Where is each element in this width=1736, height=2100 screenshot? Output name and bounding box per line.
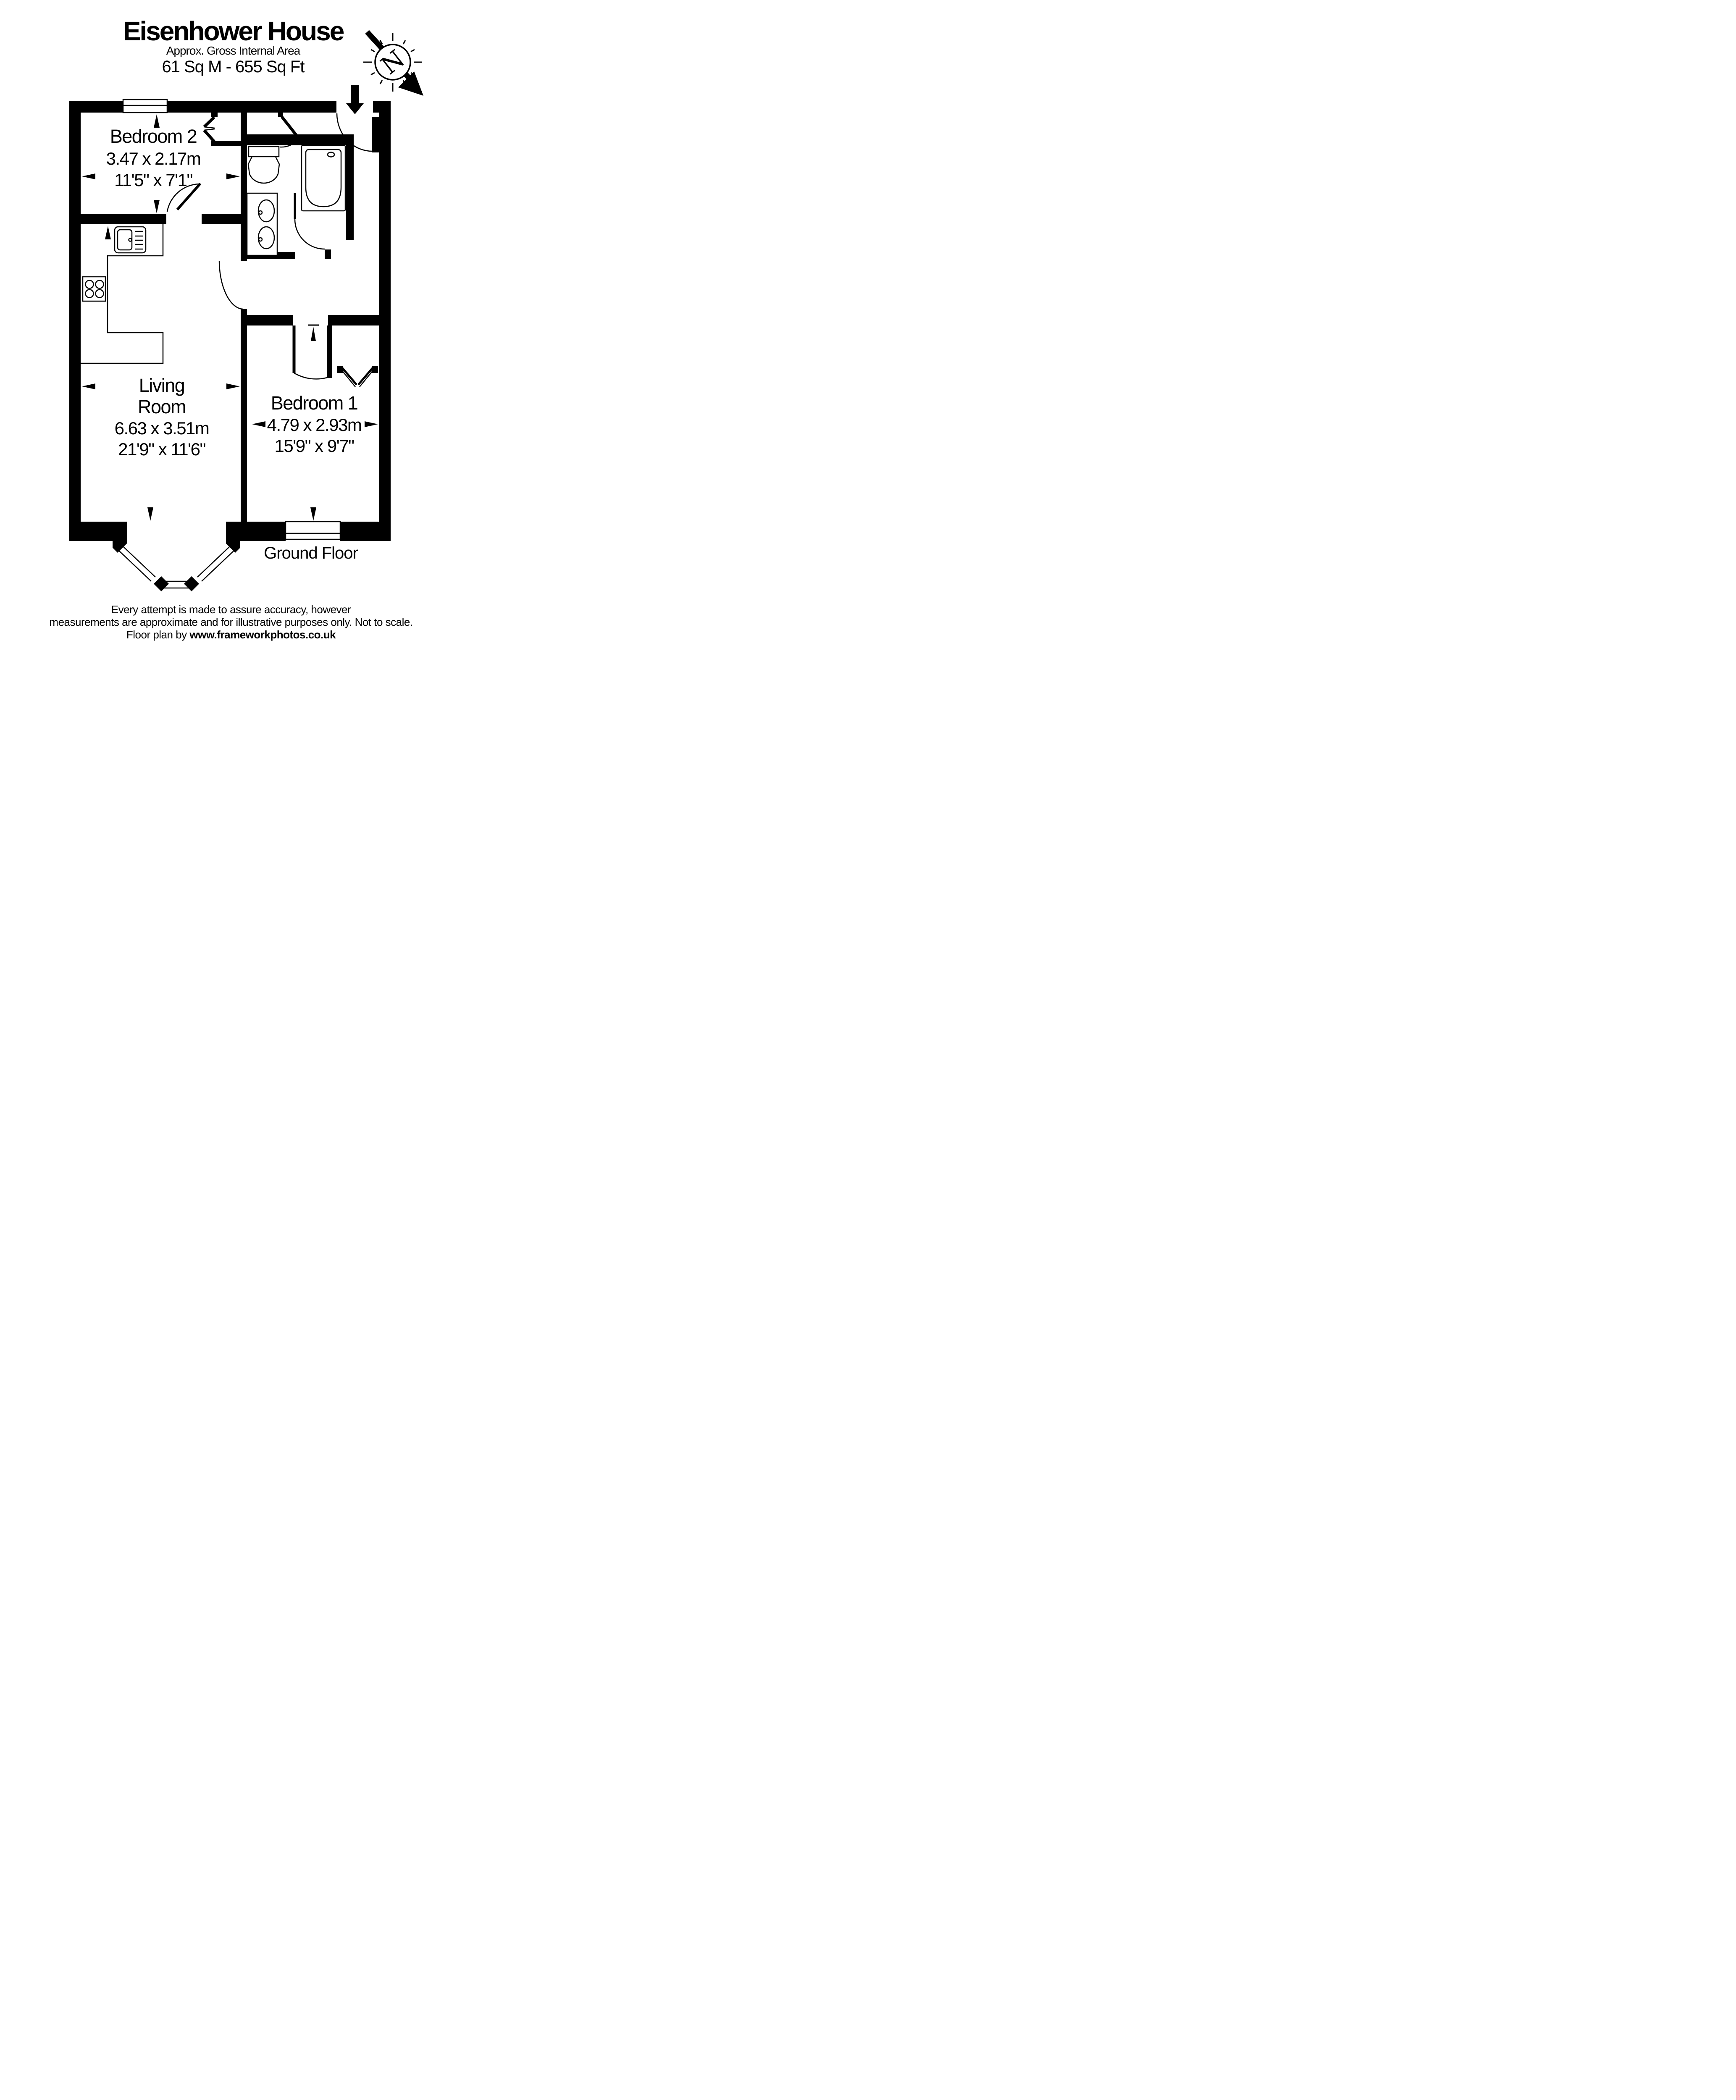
dim-arrow-down <box>154 200 160 213</box>
north-arrow-icon: N <box>363 32 423 96</box>
header: Eisenhower House Approx. Gross Internal … <box>123 16 344 76</box>
vanity-basins <box>247 193 277 255</box>
floor-plan: Eisenhower House Approx. Gross Internal … <box>0 0 459 649</box>
bedroom1-window <box>286 522 340 539</box>
closet-doors <box>342 367 373 387</box>
bedroom2-imperial: 11'5" x 7'1" <box>114 170 192 190</box>
entry-arrow <box>346 85 364 114</box>
dim-arrow-right <box>365 421 378 427</box>
bedroom2-window <box>123 100 167 113</box>
dim-arrow-left <box>82 383 95 389</box>
kitchen-sink <box>115 227 146 253</box>
bathtub <box>302 145 345 211</box>
bedroom1-name: Bedroom 1 <box>271 392 358 414</box>
bedroom2-name: Bedroom 2 <box>110 126 197 147</box>
bedroom2-metric: 3.47 x 2.17m <box>106 149 201 168</box>
living-imperial: 21'9" x 11'6" <box>118 439 205 459</box>
toilet <box>248 147 279 183</box>
page-title: Eisenhower House <box>123 16 344 46</box>
dim-arrow-down <box>310 507 316 521</box>
dim-arrow-up <box>105 226 111 239</box>
bedroom1-imperial: 15'9" x 9'7" <box>275 436 355 456</box>
dim-arrow-down <box>147 507 153 521</box>
credit-site: www.frameworkphotos.co.uk <box>189 628 336 641</box>
livingroom-door <box>219 261 243 309</box>
dim-arrow-up <box>311 327 316 341</box>
bedroom1-metric: 4.79 x 2.93m <box>267 415 362 435</box>
living-name-line1: Living <box>139 375 185 396</box>
disclaimer-line1: Every attempt is made to assure accuracy… <box>111 603 351 616</box>
dim-arrow-right <box>226 173 240 179</box>
floor-label: Ground Floor <box>264 544 358 562</box>
credit-prefix: Floor plan by <box>126 628 190 641</box>
bay-window <box>113 522 240 591</box>
living-metric: 6.63 x 3.51m <box>115 418 209 438</box>
entry-jamb-stub <box>372 117 379 152</box>
footer: Every attempt is made to assure accuracy… <box>49 603 412 641</box>
dim-arrow-left <box>82 173 95 179</box>
kitchen-hob <box>83 277 105 301</box>
credit-line: Floor plan by www.frameworkphotos.co.uk <box>126 628 336 641</box>
living-name-line2: Room <box>138 396 186 417</box>
bifold-closet-door <box>204 117 215 142</box>
dim-arrow-right <box>226 383 240 389</box>
dim-arrow-left <box>252 421 265 427</box>
disclaimer-line2: measurements are approximate and for ill… <box>49 616 412 628</box>
gross-area-label: 61 Sq M - 655 Sq Ft <box>162 58 305 76</box>
subtitle: Approx. Gross Internal Area <box>166 44 301 57</box>
bedroom1-door <box>294 325 327 379</box>
